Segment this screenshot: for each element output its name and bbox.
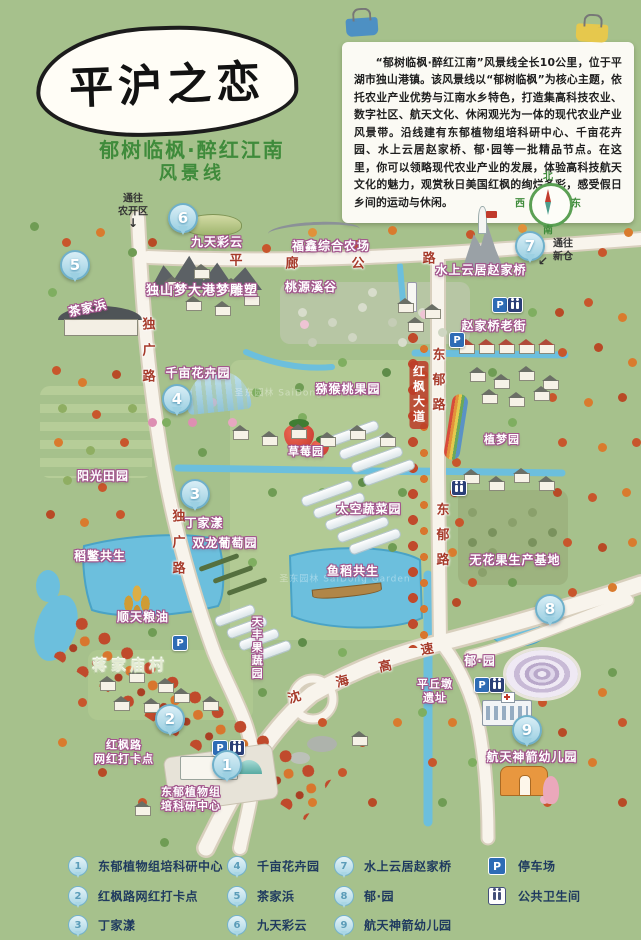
legend-pin-4: 4 <box>227 856 247 876</box>
label-qianmu-garden: 千亩花卉园 <box>165 366 230 382</box>
label-fig-base: 无花果生产基地 <box>469 553 560 569</box>
map-pin-7: 7 <box>515 231 545 261</box>
road-name-hongfengdadao: 红枫大道 <box>410 361 429 429</box>
house-icon <box>114 701 130 711</box>
road-char: 路 <box>422 248 435 267</box>
label-jiangjiamiao-village: 蒋家庙村 <box>92 656 168 676</box>
legend-pin-1: 1 <box>68 856 88 876</box>
legend-pin-5: 5 <box>227 886 247 906</box>
label-zhaojiaqiao-laojie: 赵家桥老街 <box>461 319 526 335</box>
label-dingjiayang: 丁家漾 <box>184 516 223 532</box>
house-icon <box>489 481 505 491</box>
house-icon <box>350 430 366 440</box>
map-pin-3: 3 <box>180 479 210 509</box>
pink-mascot <box>543 776 559 804</box>
house-icon <box>194 269 210 279</box>
house-icon <box>519 371 535 381</box>
house-icon <box>482 394 498 404</box>
label-shuanglong-vineyard: 双龙葡萄园 <box>192 536 257 552</box>
house-icon <box>539 344 555 354</box>
house-icon <box>233 430 249 440</box>
house-icon <box>534 391 550 401</box>
label-dushan-sculpture: 独山梦大港梦雕塑 <box>146 284 258 301</box>
house-icon <box>262 436 278 446</box>
road-char: 廊 <box>285 253 298 272</box>
map-pin-6: 6 <box>168 203 198 233</box>
legend-pin-9: 9 <box>334 915 354 935</box>
label-hongfeng-checkin: 红枫路 网红打卡点 <box>94 739 154 768</box>
house-icon <box>100 681 116 691</box>
legend-pin-3: 3 <box>68 915 88 935</box>
house-icon <box>479 344 495 354</box>
road-char: 平 <box>229 250 242 269</box>
parking-icon: P <box>172 635 188 651</box>
label-space-vegetable: 太空蔬菜园 <box>336 502 401 518</box>
house-icon <box>539 481 555 491</box>
label-taoyuan-valley: 桃源溪谷 <box>285 280 337 296</box>
label-strawberry-garden: 草莓园 <box>288 445 324 459</box>
legend-pin-2: 2 <box>68 886 88 906</box>
house-icon <box>519 344 535 354</box>
label-yuyuan: 郁·园 <box>464 654 496 670</box>
house-icon <box>380 437 396 447</box>
house-icon <box>215 306 231 316</box>
parking-icon: P <box>474 677 490 693</box>
label-sunshine-fields: 阳光田园 <box>77 469 129 485</box>
house-icon <box>174 693 190 703</box>
red-cross-icon <box>504 694 510 700</box>
house-icon <box>494 379 510 389</box>
house-icon <box>470 372 486 382</box>
yuyuan-circular-garden <box>506 650 578 698</box>
road-name-dongyulu: 东郁路 <box>432 503 451 578</box>
restroom-icon <box>451 480 467 496</box>
map-pin-4: 4 <box>162 384 192 414</box>
house-icon <box>186 301 202 311</box>
road-name-duguanglu: 独广路 <box>138 317 157 395</box>
label-tianfeng-garden: 天丰果蔬园 <box>249 616 263 681</box>
label-fish-rice: 鱼稻共生 <box>327 564 379 580</box>
kindergarten-building <box>500 766 548 796</box>
map-pin-8: 8 <box>535 594 565 624</box>
map-pin-2: 2 <box>155 704 185 734</box>
road-name-dongyulu: 东郁路 <box>428 348 447 423</box>
label-rice-turtle: 稻鳖共生 <box>74 549 126 565</box>
house-icon <box>203 701 219 711</box>
map-pin-5: 5 <box>60 250 90 280</box>
label-pingqiudun-site: 平丘墩 遗址 <box>417 678 453 707</box>
house-icon <box>135 806 151 816</box>
map-pin-1: 1 <box>212 750 242 780</box>
legend-pin-7: 7 <box>334 856 354 876</box>
label-jiutiancaiyun: 九天彩云 <box>191 235 243 251</box>
house-icon <box>158 683 174 693</box>
house-icon <box>425 309 441 319</box>
scenic-route-map-poster: 平沪之恋 郁树临枫·醉红江南 风景线 “郁树临枫·醉红江南”风景线全长10公里，… <box>0 0 641 940</box>
restroom-icon <box>507 297 523 313</box>
house-icon <box>514 473 530 483</box>
legend-pin-6: 6 <box>227 915 247 935</box>
label-shuishang-yunju: 水上云居赵家桥 <box>435 263 526 279</box>
pink-blossom <box>0 0 9 9</box>
house-icon <box>352 736 368 746</box>
label-shuntian-grain: 顺天粮油 <box>117 610 169 626</box>
restroom-icon <box>489 677 505 693</box>
map-pin-9: 9 <box>512 715 542 745</box>
legend-pin-8: 8 <box>334 886 354 906</box>
label-fuxin-farm: 福鑫综合农场 <box>292 239 370 255</box>
exit-arrow-down-icon: ↓ <box>128 216 138 230</box>
house-icon <box>291 429 307 439</box>
label-kiwi-orchard: 猕猴桃果园 <box>315 382 380 398</box>
parking-icon: P <box>449 332 465 348</box>
label-dongyu-research-center: 东郁植物组 培科研中心 <box>161 786 221 815</box>
rocket-sign <box>486 211 497 218</box>
house-icon <box>398 303 414 313</box>
label-zhimengyuan: 植梦园 <box>484 433 520 447</box>
house-icon <box>509 397 525 407</box>
road-char: 公 <box>351 253 364 272</box>
exit-sign-xincang: 通往 新仓 <box>553 239 573 264</box>
house-icon <box>408 322 424 332</box>
house-icon <box>499 344 515 354</box>
exit-sign-nongkaiqu: 通往 农开区 <box>118 194 148 219</box>
parking-icon: P <box>492 297 508 313</box>
label-aerospace-kindergarten: 航天神箭幼儿园 <box>486 750 577 766</box>
